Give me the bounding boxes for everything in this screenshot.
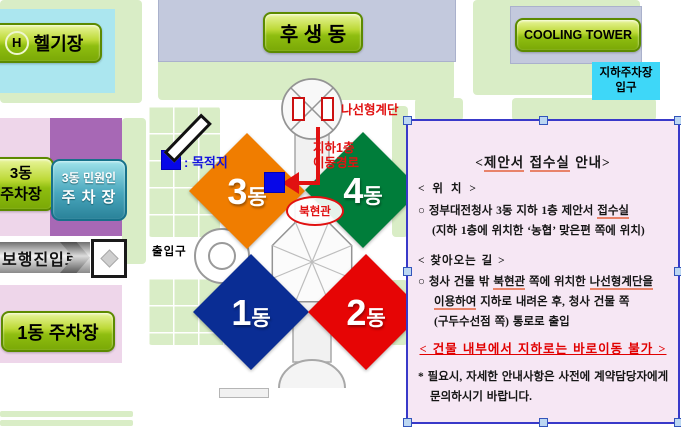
gate-label: 출입구 — [152, 243, 187, 259]
location-header: < 위 치 > — [418, 180, 478, 196]
infobox-title: <제안서 접수실 안내> — [408, 151, 678, 171]
destination-marker — [264, 172, 285, 193]
directions-line-1: ○ 청사 건물 밖 북현관 쪽에 위치한 나선형계단을 — [418, 273, 653, 289]
bottom-strip-2 — [0, 420, 133, 426]
site-map-page: 보행진입로 출입구 3동 4동 1동 2동 — [0, 0, 681, 427]
cooling-tower-label: COOLING TOWER — [515, 18, 641, 52]
directions-line-2: 이용하여 지하로 내려온 후, 청사 건물 쪽 — [434, 293, 629, 309]
resize-handle-bottom-left[interactable] — [403, 418, 412, 427]
underground-parking-entrance-sign: 지하주차장 입구 — [592, 62, 660, 100]
gate-structure — [91, 239, 127, 278]
helipad-h-icon: H — [5, 31, 29, 55]
route-line-horizontal — [299, 181, 319, 185]
resize-handle-mid-right[interactable] — [674, 267, 681, 276]
husaengdong-label: 후 생 동 — [263, 12, 363, 53]
guide-infobox[interactable]: <제안서 접수실 안내> < 위 치 > ○ 정부대전청사 3동 지하 1층 제… — [406, 119, 680, 424]
gate-diamond-icon — [100, 249, 118, 267]
building-1dong-label: 1동 — [203, 295, 299, 331]
resize-handle-top-left[interactable] — [403, 116, 412, 125]
note-line-1: * 필요시, 자세한 안내사항은 사전에 계약담당자에게 — [418, 368, 668, 384]
spiral-stair-icon-left — [292, 97, 305, 121]
route-line-vertical — [316, 127, 320, 185]
legend-destination-label: : 목적지 — [184, 152, 228, 171]
right-block-sliver-2 — [512, 98, 656, 121]
note-line-2: 문의하시기 바랍니다. — [430, 388, 532, 404]
pedestrian-road: 보행진입로 — [0, 242, 90, 273]
directions-line-3: (구두수선점 쪽) 통로로 출입 — [434, 313, 570, 329]
helipad-label: H 헬기장 — [0, 23, 102, 63]
resize-handle-bottom-right[interactable] — [674, 418, 681, 427]
resize-handle-top-center[interactable] — [539, 116, 548, 125]
spiral-stairs-label: 나선형계단 — [341, 99, 399, 118]
location-line-1: ○ 정부대전청사 3동 지하 1층 제안서 접수실 — [418, 202, 629, 218]
spiral-stair-icon-right — [321, 97, 334, 121]
parking-1dong-label: 1동 주차장 — [1, 311, 115, 352]
directions-header: < 찾아오는 길 > — [418, 252, 506, 268]
building-2dong-label: 2동 — [318, 295, 414, 331]
right-block-sliver-1 — [415, 98, 463, 121]
resize-handle-bottom-center[interactable] — [539, 418, 548, 427]
parking-3dong-minwon-label: 3동 민원인 주 차 장 — [51, 159, 127, 221]
warning-line: < 건물 내부에서 지하로는 바로이동 불가 > — [408, 338, 678, 357]
south-entrance-step — [219, 388, 269, 398]
resize-handle-top-right[interactable] — [674, 116, 681, 125]
north-gate-label: 북현관 — [286, 196, 344, 226]
location-line-2: (지하 1층에 위치한 ‘농협’ 맞은편 쪽에 위치) — [432, 222, 645, 238]
resize-handle-mid-left[interactable] — [403, 267, 412, 276]
parking-3dong-label: 3동 주차장 — [0, 157, 54, 211]
bottom-strip-1 — [0, 411, 133, 417]
plaza-circle-inner — [208, 242, 236, 270]
